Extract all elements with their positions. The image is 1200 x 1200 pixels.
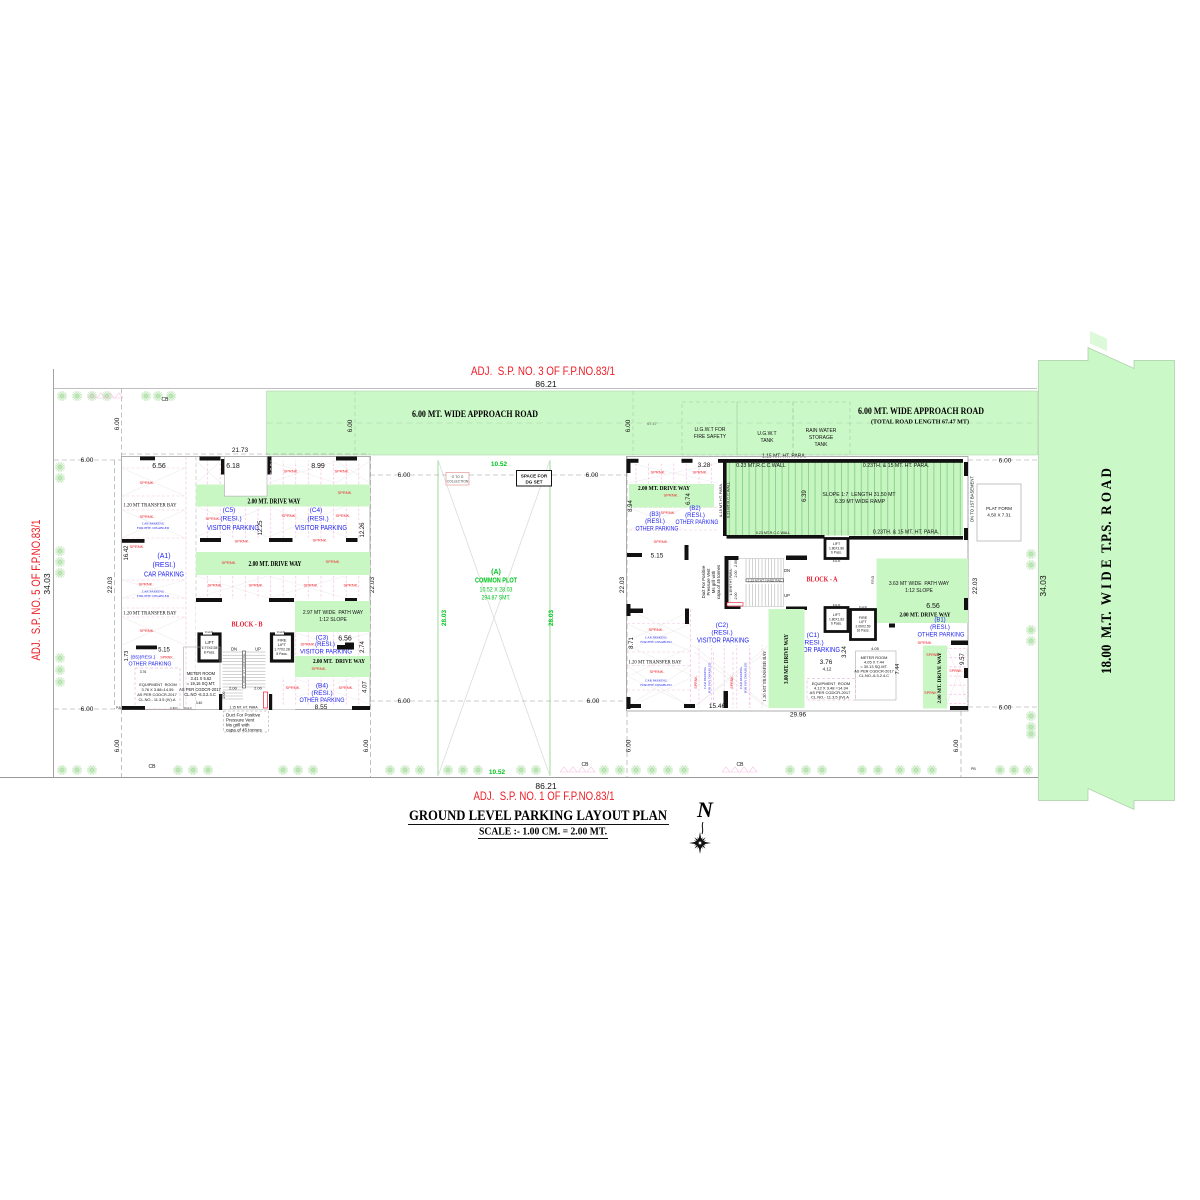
svg-text:FOR PHY DISABLED: FOR PHY DISABLED bbox=[708, 662, 712, 693]
svg-text:VISITOR PARKING: VISITOR PARKING bbox=[207, 525, 259, 532]
svg-text:0.23TH. & 15 MT. HT. PARA.: 0.23TH. & 15 MT. HT. PARA. bbox=[863, 463, 929, 469]
svg-text:86.21: 86.21 bbox=[535, 379, 557, 389]
svg-text:(RESI.): (RESI.) bbox=[711, 630, 732, 637]
svg-text:34.03: 34.03 bbox=[42, 573, 52, 595]
svg-text:3.63 MT WIDE PATH WAY: 3.63 MT WIDE PATH WAY bbox=[889, 581, 950, 587]
svg-text:2.00 MT. DRIVE WAY: 2.00 MT. DRIVE WAY bbox=[249, 560, 302, 568]
svg-text:SPRNK.: SPRNK. bbox=[304, 583, 319, 588]
svg-text:0.23 MT.R.C.C.WALL: 0.23 MT.R.C.C.WALL bbox=[736, 463, 786, 469]
svg-text:6.00: 6.00 bbox=[999, 705, 1012, 712]
svg-text:(RESI.): (RESI.) bbox=[311, 690, 332, 697]
svg-text:SPRNK.: SPRNK. bbox=[286, 685, 301, 690]
svg-text:(C1): (C1) bbox=[807, 632, 820, 639]
svg-text:ADJ. S.P. NO. 1 OF F.P.NO.83/: ADJ. S.P. NO. 1 OF F.P.NO.83/1 bbox=[474, 791, 615, 803]
svg-text:1.20 MT TRANSFER BAY: 1.20 MT TRANSFER BAY bbox=[123, 504, 177, 509]
svg-text:SPRNK.: SPRNK. bbox=[339, 685, 354, 690]
svg-text:SPRNK.: SPRNK. bbox=[222, 560, 237, 565]
svg-text:&.15 MT. HT. PARA.: &.15 MT. HT. PARA. bbox=[719, 483, 723, 517]
svg-text:0.23 MT.R.C.C.WALL: 0.23 MT.R.C.C.WALL bbox=[727, 482, 731, 518]
svg-text:CB: CB bbox=[162, 397, 170, 403]
svg-text:1.73: 1.73 bbox=[124, 651, 130, 662]
svg-text:SPRNK.: SPRNK. bbox=[924, 691, 937, 695]
svg-text:(C3): (C3) bbox=[316, 635, 329, 642]
svg-text:34.03: 34.03 bbox=[1038, 575, 1048, 597]
svg-text:2.00 MT. DRIVE WAY: 2.00 MT. DRIVE WAY bbox=[313, 659, 366, 665]
svg-text:F.H.D: F.H.D bbox=[833, 603, 841, 607]
svg-text:(C2): (C2) bbox=[716, 622, 729, 629]
svg-text:6.56: 6.56 bbox=[338, 636, 352, 643]
svg-text:CL.NO.-6.3.2.4.C: CL.NO.-6.3.2.4.C bbox=[859, 673, 889, 678]
svg-text:18.00 M.T. W I D E T.P.S.: 18.00 M.T. W I D E T.P.S. R O A D bbox=[1099, 468, 1115, 674]
svg-text:SPRNK.: SPRNK. bbox=[693, 470, 708, 475]
svg-text:(RESI.): (RESI.) bbox=[220, 516, 241, 523]
svg-text:(RESI.): (RESI.) bbox=[315, 642, 335, 648]
svg-text:PB: PB bbox=[971, 767, 976, 771]
svg-text:1.77X2.28: 1.77X2.28 bbox=[274, 648, 290, 652]
svg-text:1.20 MT TRANSFER BAY: 1.20 MT TRANSFER BAY bbox=[123, 612, 177, 617]
svg-text:ADJ. S.P. NO. 3 OF F.P.NO.83/: ADJ. S.P. NO. 3 OF F.P.NO.83/1 bbox=[471, 366, 615, 378]
svg-text:5.15: 5.15 bbox=[651, 553, 664, 560]
svg-text:COMMON PLOT: COMMON PLOT bbox=[475, 578, 518, 585]
svg-text:CAR PARKING: CAR PARKING bbox=[144, 570, 184, 579]
svg-text:CAR PARKING: CAR PARKING bbox=[645, 679, 668, 683]
svg-text:SCALE :- 1.00 CM. = 2.00 MT.: SCALE :- 1.00 CM. = 2.00 MT. bbox=[479, 827, 607, 838]
svg-text:FOR PHY. DISABLED: FOR PHY. DISABLED bbox=[640, 640, 672, 644]
svg-text:UP: UP bbox=[255, 647, 261, 652]
svg-text:F.P.O: F.P.O bbox=[170, 706, 178, 710]
svg-text:10.52: 10.52 bbox=[491, 461, 508, 468]
svg-text:10.52 X 28.03: 10.52 X 28.03 bbox=[480, 587, 513, 594]
svg-text:1.77X2.28: 1.77X2.28 bbox=[202, 646, 218, 650]
svg-text:6.00: 6.00 bbox=[363, 739, 370, 752]
svg-text:F.H.D: F.H.D bbox=[205, 630, 213, 634]
svg-text:OTHER PARKING: OTHER PARKING bbox=[676, 519, 719, 526]
svg-text:SPRNK.: SPRNK. bbox=[312, 666, 327, 671]
svg-text:CAR PARKING: CAR PARKING bbox=[739, 666, 743, 689]
svg-text:F.H.D: F.H.D bbox=[859, 605, 867, 609]
svg-text:12.25: 12.25 bbox=[258, 520, 264, 536]
svg-text:2.00: 2.00 bbox=[222, 692, 226, 699]
svg-text:(RESI.): (RESI.) bbox=[307, 516, 328, 523]
svg-text:2.00: 2.00 bbox=[734, 593, 738, 600]
svg-text:DN: DN bbox=[784, 568, 790, 573]
svg-text:(C5): (C5) bbox=[223, 507, 236, 514]
svg-text:6.00 MT. WIDE APPROACH ROAD: 6.00 MT. WIDE APPROACH ROAD bbox=[412, 410, 538, 420]
svg-text:(B1): (B1) bbox=[934, 618, 945, 624]
svg-text:BLOCK - A: BLOCK - A bbox=[807, 575, 838, 584]
svg-text:6.56: 6.56 bbox=[926, 603, 940, 610]
svg-text:8.94: 8.94 bbox=[628, 500, 634, 512]
svg-text:6.39: 6.39 bbox=[802, 490, 808, 502]
svg-text:4.50 X 7.31: 4.50 X 7.31 bbox=[987, 513, 1011, 518]
svg-text:F.R.O: F.R.O bbox=[871, 575, 875, 584]
svg-text:RAIN WATER: RAIN WATER bbox=[806, 428, 837, 434]
svg-text:22.03: 22.03 bbox=[619, 576, 626, 593]
svg-text:15.46: 15.46 bbox=[709, 703, 726, 710]
svg-text:4.05: 4.05 bbox=[871, 646, 880, 651]
svg-text:(B4): (B4) bbox=[316, 683, 328, 690]
svg-text:CAR PARKING: CAR PARKING bbox=[142, 522, 165, 526]
svg-text:6.00: 6.00 bbox=[953, 739, 960, 752]
svg-text:LIFT: LIFT bbox=[859, 620, 867, 624]
svg-text:(C4): (C4) bbox=[310, 507, 323, 514]
svg-text:6.39 MT WIDE RAMP: 6.39 MT WIDE RAMP bbox=[835, 499, 886, 505]
svg-text:CAR PARKING: CAR PARKING bbox=[645, 636, 668, 640]
svg-text:FOR PHY. DISABLED: FOR PHY. DISABLED bbox=[137, 526, 170, 530]
svg-text:OTHER PARKING: OTHER PARKING bbox=[918, 632, 965, 639]
svg-text:SPRNK.: SPRNK. bbox=[949, 669, 962, 673]
svg-text:SPRNK.: SPRNK. bbox=[235, 539, 250, 544]
svg-text:6.00 MT. WIDE APPROACH ROAD: 6.00 MT. WIDE APPROACH ROAD bbox=[858, 406, 984, 416]
svg-text:6.00: 6.00 bbox=[398, 472, 411, 479]
svg-text:F.H.D: F.H.D bbox=[277, 630, 285, 634]
svg-text:1.20 MT TRANSFER BAY: 1.20 MT TRANSFER BAY bbox=[628, 661, 682, 666]
svg-text:16 Pass.: 16 Pass. bbox=[857, 629, 870, 633]
svg-text:SPRNK.: SPRNK. bbox=[140, 480, 155, 485]
svg-text:2.97 MT WIDE PATH WAY: 2.97 MT WIDE PATH WAY bbox=[303, 610, 364, 616]
svg-text:6.00: 6.00 bbox=[586, 472, 599, 479]
svg-text:6.00: 6.00 bbox=[626, 739, 633, 752]
svg-text:2.74: 2.74 bbox=[360, 641, 366, 653]
svg-text:STORAGE: STORAGE bbox=[809, 435, 834, 441]
svg-text:SPRNK.: SPRNK. bbox=[284, 469, 299, 474]
svg-text:(B5)(RESI.): (B5)(RESI.) bbox=[131, 655, 156, 661]
svg-text:22.03: 22.03 bbox=[972, 577, 979, 594]
svg-text:FOR PHY. DISABLED: FOR PHY. DISABLED bbox=[640, 683, 672, 687]
svg-text:6.00: 6.00 bbox=[81, 706, 94, 713]
svg-text:SPRNK.: SPRNK. bbox=[282, 513, 297, 518]
svg-text:1.20 MT TRANSFER BAY: 1.20 MT TRANSFER BAY bbox=[762, 650, 767, 702]
svg-text:(RESI.): (RESI.) bbox=[153, 562, 176, 569]
svg-text:22.03: 22.03 bbox=[107, 576, 114, 593]
svg-text:6.00: 6.00 bbox=[398, 698, 411, 705]
svg-text:TANK: TANK bbox=[761, 438, 775, 444]
svg-text:SPRNK.: SPRNK. bbox=[206, 516, 221, 521]
svg-text:PLAT FORM: PLAT FORM bbox=[986, 506, 1012, 511]
svg-text:LIFT: LIFT bbox=[205, 640, 214, 645]
svg-text:TANK: TANK bbox=[815, 442, 829, 448]
svg-text:OTHER PARKING: OTHER PARKING bbox=[300, 697, 345, 704]
svg-text:2.00 MT. DRIVE WAY: 2.00 MT. DRIVE WAY bbox=[937, 653, 943, 704]
svg-text:CB: CB bbox=[737, 762, 745, 768]
svg-text:SPRNK.: SPRNK. bbox=[140, 628, 155, 633]
svg-text:FIRE SAFETY: FIRE SAFETY bbox=[694, 434, 727, 440]
svg-text:SPRNK.: SPRNK. bbox=[160, 656, 173, 660]
svg-text:U.G.W.T: U.G.W.T bbox=[757, 431, 776, 437]
svg-text:F.H.D: F.H.D bbox=[833, 559, 841, 563]
svg-text:3.76: 3.76 bbox=[140, 670, 147, 674]
svg-text:8 Pass.: 8 Pass. bbox=[276, 652, 287, 656]
svg-text:SPRNK.: SPRNK. bbox=[918, 640, 933, 645]
svg-text:SPRNK.: SPRNK. bbox=[344, 583, 359, 588]
svg-text:SPRNK.: SPRNK. bbox=[649, 627, 664, 632]
svg-text:LIFT: LIFT bbox=[833, 613, 841, 617]
svg-text:GROUND LEVEL PARKING LAYOUT PL: GROUND LEVEL PARKING LAYOUT PLAN bbox=[409, 808, 667, 824]
svg-text:VISITOR PARKING: VISITOR PARKING bbox=[295, 525, 347, 532]
svg-text:FOR PHY. DISABLED: FOR PHY. DISABLED bbox=[137, 594, 170, 598]
svg-text:CB: CB bbox=[582, 762, 590, 768]
svg-text:2.00 MT. DRIVE WAY: 2.00 MT. DRIVE WAY bbox=[638, 486, 691, 492]
svg-text:1:12 SLOPE: 1:12 SLOPE bbox=[319, 617, 347, 623]
svg-text:O TO G: O TO G bbox=[452, 475, 464, 479]
svg-text:3.00 MT. DRIVE WAY: 3.00 MT. DRIVE WAY bbox=[784, 633, 790, 684]
svg-text:12.26: 12.26 bbox=[360, 522, 366, 538]
svg-text:8.71: 8.71 bbox=[629, 637, 635, 649]
svg-text:(A): (A) bbox=[491, 569, 501, 576]
svg-text:(A1): (A1) bbox=[157, 553, 170, 560]
svg-text:SLOPE 1:7 LENGTH 31.50 MT: SLOPE 1:7 LENGTH 31.50 MT bbox=[822, 492, 896, 498]
svg-text:1.15 MT.HT. HAND RAIL: 1.15 MT.HT. HAND RAIL bbox=[748, 579, 782, 583]
svg-text:3.24: 3.24 bbox=[842, 646, 848, 658]
svg-text:6.00: 6.00 bbox=[347, 419, 354, 432]
svg-text:9.57: 9.57 bbox=[960, 653, 966, 665]
svg-text:CL.NO.- 11.3.5 (IV).A: CL.NO.- 11.3.5 (IV).A bbox=[139, 697, 176, 702]
svg-text:6.18: 6.18 bbox=[226, 463, 240, 470]
svg-text:1.15 MT. HT. PARA.: 1.15 MT. HT. PARA. bbox=[229, 706, 258, 710]
svg-text:SPRNK.: SPRNK. bbox=[313, 538, 328, 543]
svg-text:SPRNK.: SPRNK. bbox=[926, 653, 939, 657]
svg-text:CL.NO.- 11.3.5 (IV).A: CL.NO.- 11.3.5 (IV).A bbox=[811, 695, 849, 700]
svg-text:(RESI.): (RESI.) bbox=[802, 640, 823, 647]
svg-text:5.15: 5.15 bbox=[158, 648, 170, 654]
svg-text:CAR PARKING: CAR PARKING bbox=[703, 666, 707, 689]
svg-text:DG SET: DG SET bbox=[525, 480, 542, 485]
svg-text:SPRNK.: SPRNK. bbox=[664, 493, 679, 498]
svg-text:SPRNK.: SPRNK. bbox=[694, 675, 698, 688]
svg-text:SPRNK.: SPRNK. bbox=[249, 583, 264, 588]
svg-text:6.00: 6.00 bbox=[114, 417, 121, 430]
svg-text:F.H.C: F.H.C bbox=[184, 706, 192, 710]
svg-text:4.07: 4.07 bbox=[363, 681, 369, 693]
svg-text:LIFT: LIFT bbox=[833, 542, 841, 546]
svg-text:capa.of 45 tonnes: capa.of 45 tonnes bbox=[226, 728, 263, 733]
svg-text:6 Pass.: 6 Pass. bbox=[831, 551, 842, 555]
svg-text:(B2): (B2) bbox=[689, 506, 700, 512]
svg-text:(TOTAL ROAD LENGTH 67.47 MT): (TOTAL ROAD LENGTH 67.47 MT) bbox=[871, 419, 969, 426]
svg-text:SPRNK.: SPRNK. bbox=[336, 513, 351, 518]
svg-text:6.00: 6.00 bbox=[81, 457, 94, 464]
svg-text:CAR PARKING: CAR PARKING bbox=[142, 590, 165, 594]
svg-text:6.00: 6.00 bbox=[114, 739, 121, 752]
svg-text:8 Pass.: 8 Pass. bbox=[204, 651, 215, 655]
svg-text:SPACE FOR: SPACE FOR bbox=[521, 474, 548, 479]
svg-text:6.56: 6.56 bbox=[152, 463, 166, 470]
svg-text:7.44: 7.44 bbox=[895, 664, 901, 675]
svg-text:N: N bbox=[696, 797, 714, 822]
svg-text:2.00 MT. DRIVE WAY: 2.00 MT. DRIVE WAY bbox=[248, 498, 301, 506]
svg-text:SPRNK.: SPRNK. bbox=[130, 544, 145, 549]
svg-text:P.B.: P.B. bbox=[116, 706, 122, 710]
svg-text:SPRNK.: SPRNK. bbox=[730, 675, 734, 688]
svg-text:1.15 MT. HT. HAND RAIL: 1.15 MT. HT. HAND RAIL bbox=[242, 653, 246, 686]
svg-text:2.00: 2.00 bbox=[734, 560, 738, 567]
svg-text:2.00: 2.00 bbox=[734, 571, 738, 578]
svg-text:8.99: 8.99 bbox=[311, 463, 325, 470]
svg-text:DN: DN bbox=[231, 647, 237, 652]
svg-text:0.23 MT.R.C.C WALL: 0.23 MT.R.C.C WALL bbox=[756, 531, 790, 535]
svg-text:0.23TH. & 15 MT. HT. PARA.: 0.23TH. & 15 MT. HT. PARA. bbox=[873, 530, 939, 536]
svg-text:6.00: 6.00 bbox=[625, 419, 632, 432]
svg-text:SPRNK.: SPRNK. bbox=[140, 514, 155, 519]
svg-text:21.73: 21.73 bbox=[232, 447, 249, 454]
svg-text:SPRNK.: SPRNK. bbox=[338, 490, 353, 495]
svg-text:VISITOR PARKING: VISITOR PARKING bbox=[300, 649, 352, 656]
svg-text:6.74: 6.74 bbox=[686, 493, 692, 505]
svg-text:OTHER PARKING: OTHER PARKING bbox=[636, 526, 679, 533]
svg-text:DN TO 1ST BASEMENT: DN TO 1ST BASEMENT bbox=[970, 476, 975, 522]
svg-text:6 Pass.: 6 Pass. bbox=[831, 622, 842, 626]
svg-text:= 19.16 SQ.MT.: = 19.16 SQ.MT. bbox=[187, 681, 216, 686]
svg-text:3.40: 3.40 bbox=[196, 701, 203, 705]
svg-text:SPRNK.: SPRNK. bbox=[654, 539, 669, 544]
svg-text:CL.NO -6.3.2.4.C: CL.NO -6.3.2.4.C bbox=[184, 692, 216, 697]
svg-text:2.00: 2.00 bbox=[229, 686, 238, 691]
svg-text:SPRNK.: SPRNK. bbox=[301, 642, 316, 647]
svg-text:10.52: 10.52 bbox=[489, 769, 506, 776]
svg-text:SPRNK.: SPRNK. bbox=[326, 559, 341, 564]
svg-text:(RESI.): (RESI.) bbox=[930, 625, 950, 631]
svg-text:(RESI.): (RESI.) bbox=[645, 519, 665, 525]
svg-text:U.G.W.T FOR: U.G.W.T FOR bbox=[694, 427, 725, 433]
svg-text:COLLECTION: COLLECTION bbox=[447, 480, 469, 484]
svg-text:CB: CB bbox=[149, 764, 157, 770]
svg-text:SPRNK.: SPRNK. bbox=[650, 669, 665, 674]
svg-text:LIFT: LIFT bbox=[278, 642, 287, 647]
svg-text:SPRNK.: SPRNK. bbox=[651, 470, 666, 475]
svg-text:294.87 SMT.: 294.87 SMT. bbox=[482, 595, 511, 602]
svg-text:SPRNK.: SPRNK. bbox=[335, 469, 350, 474]
svg-text:OTHER PARKING: OTHER PARKING bbox=[129, 662, 172, 668]
svg-text:8.55: 8.55 bbox=[315, 704, 328, 711]
svg-text:67.47: 67.47 bbox=[647, 422, 657, 426]
svg-text:28.03: 28.03 bbox=[548, 609, 555, 626]
svg-text:UP: UP bbox=[784, 593, 790, 598]
svg-text:6.00: 6.00 bbox=[587, 698, 600, 705]
svg-text:28.03: 28.03 bbox=[441, 609, 448, 626]
svg-text:SPRNK.: SPRNK. bbox=[208, 583, 223, 588]
svg-text:1.15 MT HT PARA.: 1.15 MT HT PARA. bbox=[729, 568, 733, 595]
svg-text:2.00: 2.00 bbox=[254, 686, 263, 691]
svg-text:3.76: 3.76 bbox=[820, 659, 833, 666]
svg-text:SPRNK.: SPRNK. bbox=[139, 582, 154, 587]
svg-text:BLOCK - B: BLOCK - B bbox=[232, 620, 263, 629]
svg-text:SPRNK.: SPRNK. bbox=[661, 510, 676, 515]
svg-text:86.21: 86.21 bbox=[535, 781, 557, 791]
svg-text:VISITOR PARKING: VISITOR PARKING bbox=[697, 638, 749, 645]
svg-text:29.96: 29.96 bbox=[790, 712, 807, 719]
svg-text:4.12: 4.12 bbox=[823, 667, 832, 672]
svg-text:6.00: 6.00 bbox=[999, 458, 1012, 465]
svg-text:(B3): (B3) bbox=[649, 512, 660, 518]
svg-text:capa.of 45 tonnes: capa.of 45 tonnes bbox=[716, 565, 721, 599]
svg-text:FOR PHY DISABLED: FOR PHY DISABLED bbox=[744, 662, 748, 693]
svg-text:1:12 SLOPE: 1:12 SLOPE bbox=[905, 588, 933, 594]
